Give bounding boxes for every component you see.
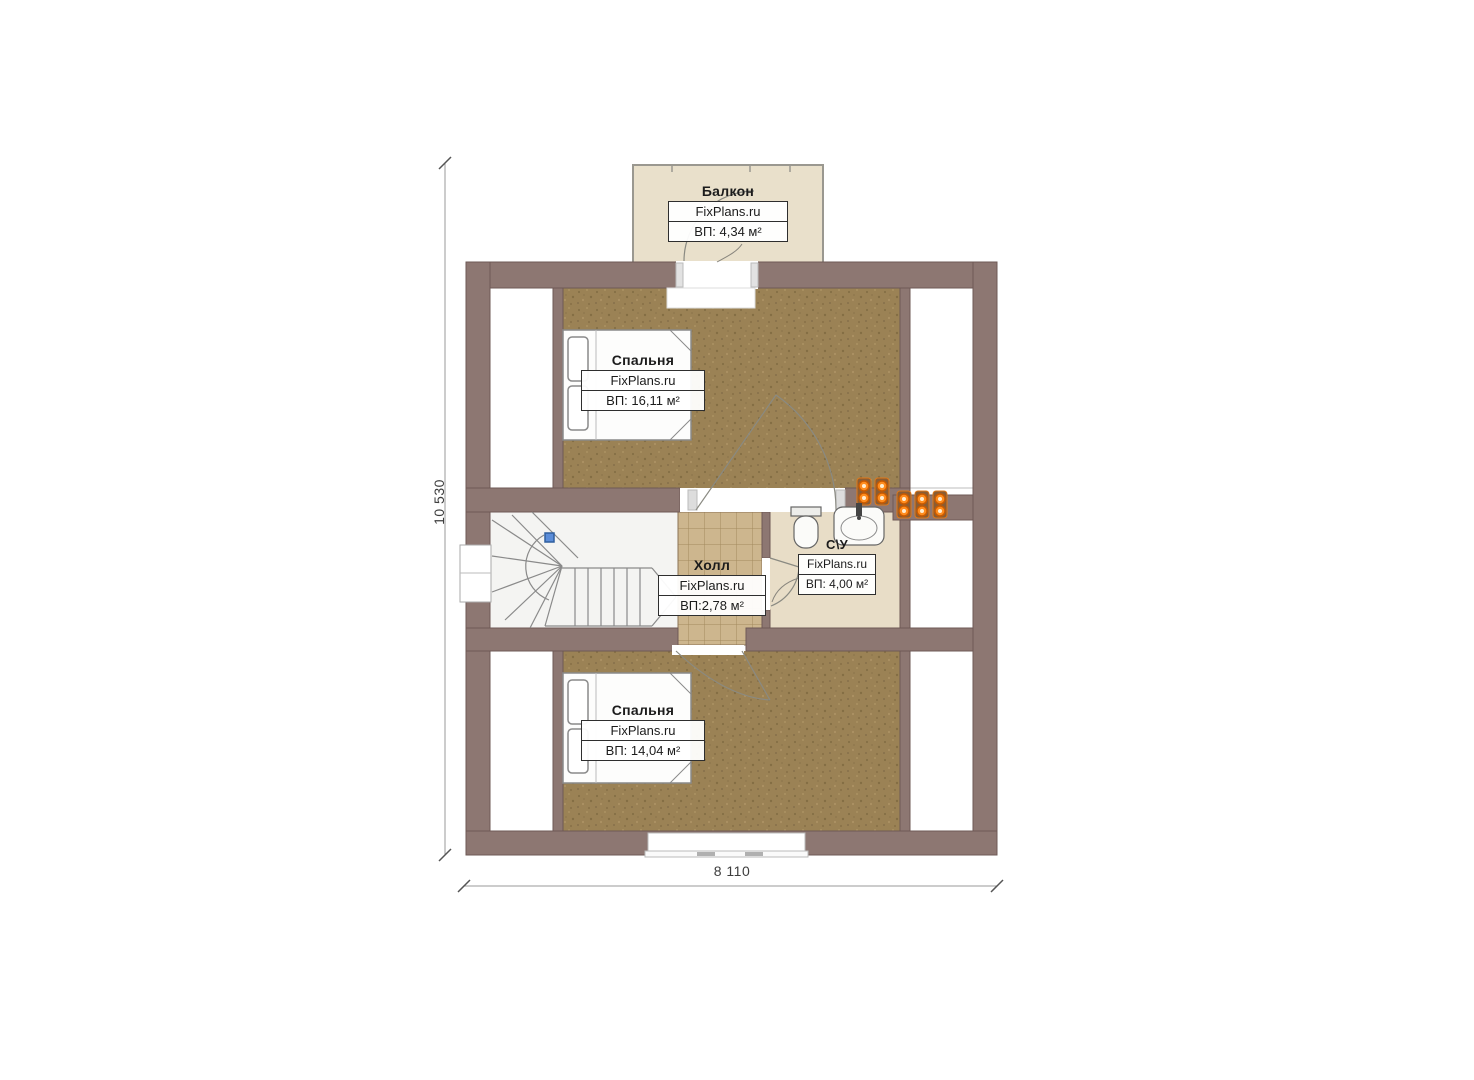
- floor-plan-drawing: [0, 0, 1474, 1080]
- dimension-vertical: 10 530: [431, 467, 447, 537]
- window-bottom: [645, 833, 808, 857]
- window-left: [460, 545, 491, 602]
- stair-marker: [545, 533, 554, 542]
- room-area: ВП:2,78 м²: [659, 595, 765, 615]
- room-info-box: FixPlans.ru ВП: 4,34 м²: [668, 201, 788, 242]
- room-area: ВП: 4,34 м²: [669, 221, 787, 241]
- room-brand: FixPlans.ru: [799, 555, 875, 574]
- room-name: Спальня: [581, 352, 705, 368]
- room-area: ВП: 4,00 м²: [799, 574, 875, 594]
- room-area: ВП: 16,11 м²: [582, 390, 704, 410]
- room-label-bedroom-top: Спальня FixPlans.ru ВП: 16,11 м²: [581, 352, 705, 411]
- room-brand: FixPlans.ru: [659, 576, 765, 595]
- room-info-box: FixPlans.ru ВП: 4,00 м²: [798, 554, 876, 595]
- room-info-box: FixPlans.ru ВП: 14,04 м²: [581, 720, 705, 761]
- room-name: Спальня: [581, 702, 705, 718]
- stairwell-floor: [490, 512, 678, 628]
- floor-plan-page: Балкон FixPlans.ru ВП: 4,34 м² Спальня F…: [0, 0, 1474, 1080]
- room-brand: FixPlans.ru: [582, 371, 704, 390]
- room-info-box: FixPlans.ru ВП: 16,11 м²: [581, 370, 705, 411]
- room-info-box: FixPlans.ru ВП:2,78 м²: [658, 575, 766, 616]
- room-name: С\У: [798, 537, 876, 552]
- room-area: ВП: 14,04 м²: [582, 740, 704, 760]
- room-brand: FixPlans.ru: [582, 721, 704, 740]
- room-name: Холл: [658, 557, 766, 573]
- room-name: Балкон: [668, 183, 788, 199]
- room-label-hall: Холл FixPlans.ru ВП:2,78 м²: [658, 557, 766, 616]
- room-label-bathroom: С\У FixPlans.ru ВП: 4,00 м²: [798, 537, 876, 595]
- room-brand: FixPlans.ru: [669, 202, 787, 221]
- dimension-horizontal: 8 110: [700, 863, 764, 879]
- room-label-balcony: Балкон FixPlans.ru ВП: 4,34 м²: [668, 183, 788, 242]
- room-label-bedroom-bottom: Спальня FixPlans.ru ВП: 14,04 м²: [581, 702, 705, 761]
